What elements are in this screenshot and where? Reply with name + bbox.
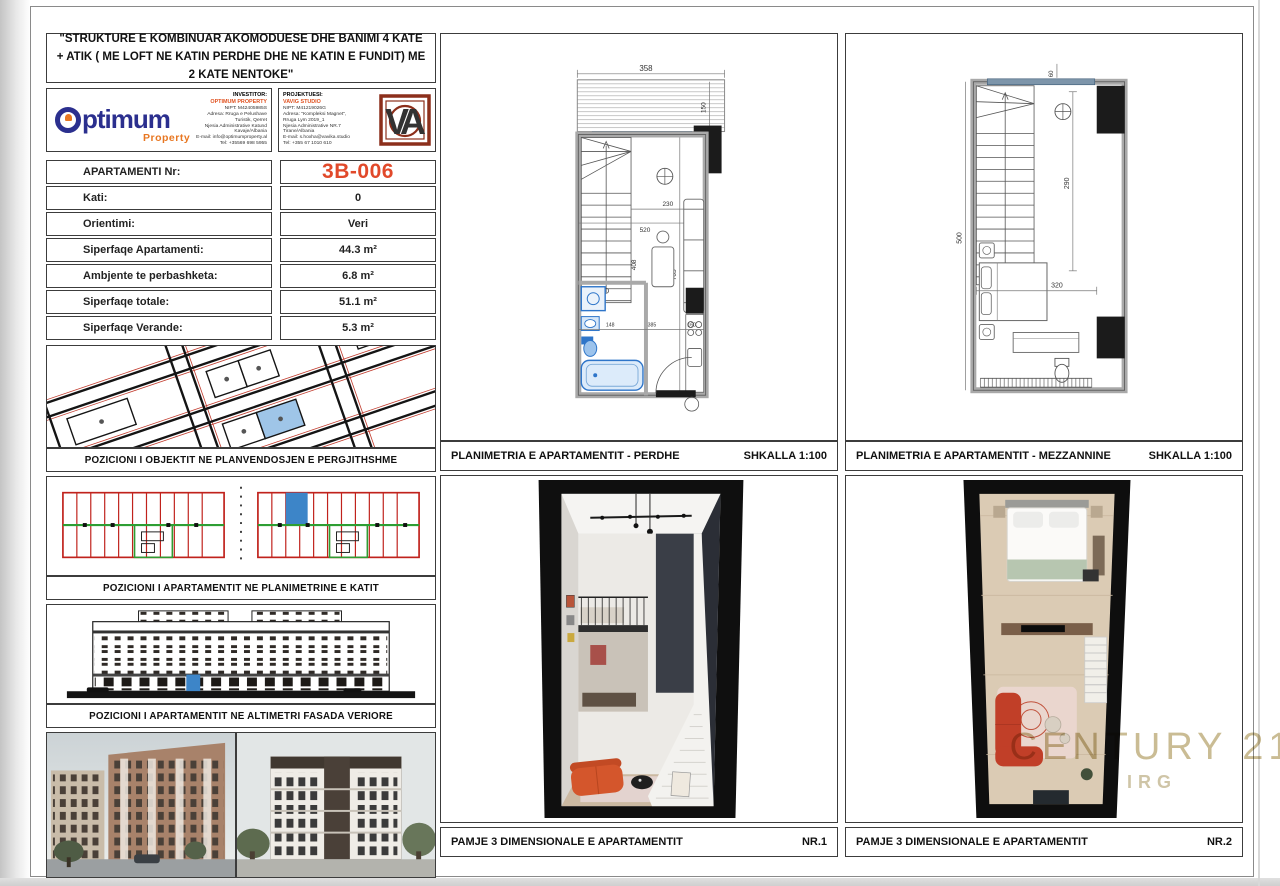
view1-caption-bar: PAMJE 3 DIMENSIONALE E APARTAMENTIT NR.1 — [440, 827, 838, 857]
dim-label: 320 — [1051, 283, 1063, 290]
view2-caption-bar: PAMJE 3 DIMENSIONALE E APARTAMENTIT NR.2 — [845, 827, 1243, 857]
dim-label: 408 — [631, 259, 638, 270]
optimum-sub-label: Property — [143, 132, 190, 144]
optimum-keyhole-icon — [55, 107, 81, 133]
dim-label: 160 — [687, 323, 696, 329]
table-label: Siperfaqe Apartamenti: — [46, 238, 272, 262]
plan-mezz-caption: PLANIMETRIA E APARTAMENTIT - MEZZANNINE — [856, 450, 1111, 462]
apartment-number: 3B-006 — [280, 160, 436, 184]
table-value: 0 — [280, 186, 436, 210]
exterior-render-2 — [236, 732, 436, 878]
floorplate-caption: POZICIONI I APARTAMENTIT NE PLANIMETRINE… — [46, 576, 436, 600]
optimum-logo: ptimum Property — [51, 92, 165, 148]
elevation-caption: POZICIONI I APARTAMENTIT NE ALTIMETRI FA… — [46, 704, 436, 728]
floorplate-drawing — [46, 476, 436, 576]
dim-label: 230 — [662, 201, 673, 208]
scan-edge-bottom — [0, 878, 1280, 886]
table-label: Ambjente te perbashketa: — [46, 264, 272, 288]
view2-caption: PAMJE 3 DIMENSIONALE E APARTAMENTIT — [856, 836, 1088, 848]
site-plan-drawing — [46, 345, 436, 448]
table-label: Orientimi: — [46, 212, 272, 236]
scan-edge-left — [0, 0, 30, 886]
dim-label: 358 — [639, 64, 653, 73]
exterior-render-1 — [46, 732, 236, 878]
dim-label: 150 — [701, 102, 708, 113]
table-value: 6.8 m² — [280, 264, 436, 288]
elevation-drawing — [46, 604, 436, 704]
table-label: Kati: — [46, 186, 272, 210]
optimum-wordmark: ptimum — [82, 104, 170, 135]
plan-mezz-scale: SHKALLA 1:100 — [1149, 450, 1232, 462]
plan-ground-caption-bar: PLANIMETRIA E APARTAMENTIT - PERDHE SHKA… — [440, 441, 838, 471]
highlighted-unit — [286, 493, 308, 525]
va-letter-a: A — [400, 101, 426, 142]
architectural-sheet: "STRUKTURE E KOMBINUAR AKOMODUESE DHE BA… — [0, 0, 1280, 886]
site-plan-caption: POZICIONI I OBJEKTIT NE PLANVENDOSJEN E … — [46, 448, 436, 472]
floor-plan-ground: 358 150 60 — [440, 33, 838, 441]
table-value: Veri — [280, 212, 436, 236]
table-label: Siperfaqe totale: — [46, 290, 272, 314]
view1-caption: PAMJE 3 DIMENSIONALE E APARTAMENTIT — [451, 836, 683, 848]
investor-block: ptimum Property INVESTITOR: OPTIMUM PROP… — [46, 88, 272, 152]
table-label: APARTAMENTI Nr: — [46, 160, 272, 184]
floor-plan-mezzanine: 60 290 — [845, 33, 1243, 441]
va-monogram-logo: V A — [379, 92, 431, 148]
view2-number: NR.2 — [1207, 836, 1232, 848]
dim-label: 60 — [1049, 70, 1055, 77]
designer-line: Tel: +355 67 1010 610 — [283, 141, 379, 147]
interior-render-2 — [845, 475, 1243, 823]
dim-label: 290 — [1064, 177, 1071, 189]
table-value: 51.1 m² — [280, 290, 436, 314]
sheet-title: "STRUKTURE E KOMBINUAR AKOMODUESE DHE BA… — [46, 33, 436, 83]
investor-header: INVESTITOR: — [165, 92, 267, 98]
highlighted-elevation-unit — [186, 675, 200, 692]
table-label: Siperfaqe Verande: — [46, 316, 272, 340]
scan-edge-right — [1258, 0, 1260, 886]
dim-label: 500 — [956, 232, 963, 244]
interior-render-1 — [440, 475, 838, 823]
view1-number: NR.1 — [802, 836, 827, 848]
plan-mezz-caption-bar: PLANIMETRIA E APARTAMENTIT - MEZZANNINE … — [845, 441, 1243, 471]
plan-ground-caption: PLANIMETRIA E APARTAMENTIT - PERDHE — [451, 450, 680, 462]
designer-contact: PROJEKTUESI: VAVIG STUDIO NIPT: M4121902… — [283, 92, 379, 148]
dim-label: 148 — [606, 323, 615, 329]
sheet-title-text: "STRUKTURE E KOMBINUAR AKOMODUESE DHE BA… — [55, 31, 427, 84]
table-value: 44.3 m² — [280, 238, 436, 262]
table-value: 5.3 m² — [280, 316, 436, 340]
plan-ground-scale: SHKALLA 1:100 — [744, 450, 827, 462]
designer-block: PROJEKTUESI: VAVIG STUDIO NIPT: M4121902… — [278, 88, 436, 152]
dim-label: 385 — [648, 323, 657, 329]
designer-header: PROJEKTUESI: — [283, 92, 379, 98]
dim-label: 520 — [640, 227, 651, 234]
